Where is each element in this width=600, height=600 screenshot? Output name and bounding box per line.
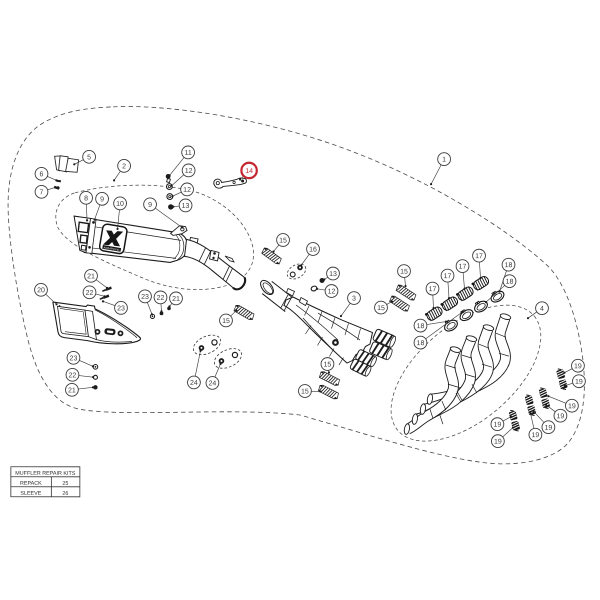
svg-text:22: 22 [86, 290, 94, 297]
svg-text:22: 22 [69, 372, 77, 379]
svg-text:23: 23 [70, 355, 78, 362]
svg-text:13: 13 [182, 203, 190, 210]
svg-text:16: 16 [309, 247, 317, 254]
svg-text:19: 19 [568, 403, 576, 410]
svg-text:8: 8 [84, 195, 88, 202]
svg-text:17: 17 [475, 253, 483, 260]
svg-text:25: 25 [62, 481, 68, 487]
svg-text:18: 18 [417, 340, 425, 347]
svg-text:18: 18 [506, 279, 514, 286]
svg-text:13: 13 [329, 271, 337, 278]
svg-text:6: 6 [40, 171, 44, 178]
svg-text:18: 18 [505, 262, 513, 269]
svg-text:SLEEVE: SLEEVE [20, 491, 41, 497]
svg-text:19: 19 [494, 422, 502, 429]
svg-text:10: 10 [116, 201, 124, 208]
svg-text:17: 17 [429, 286, 437, 293]
svg-text:21: 21 [172, 296, 180, 303]
svg-text:22: 22 [157, 295, 165, 302]
svg-text:19: 19 [531, 432, 539, 439]
svg-text:18: 18 [417, 323, 425, 330]
svg-text:7: 7 [40, 189, 44, 196]
svg-text:21: 21 [68, 387, 76, 394]
svg-text:17: 17 [444, 273, 452, 280]
svg-text:9: 9 [100, 196, 104, 203]
svg-text:15: 15 [279, 237, 287, 244]
svg-text:15: 15 [222, 318, 230, 325]
svg-text:3: 3 [352, 296, 356, 303]
svg-text:23: 23 [117, 305, 125, 312]
svg-text:17: 17 [459, 264, 467, 271]
svg-text:23: 23 [141, 294, 149, 301]
svg-text:21: 21 [87, 273, 95, 280]
svg-text:15: 15 [301, 389, 309, 396]
svg-text:4: 4 [540, 306, 544, 313]
svg-text:15: 15 [324, 362, 332, 369]
svg-text:19: 19 [575, 379, 583, 386]
svg-text:15: 15 [377, 305, 385, 312]
svg-text:12: 12 [185, 168, 193, 175]
svg-text:12: 12 [328, 289, 336, 296]
svg-text:26: 26 [62, 491, 68, 497]
svg-text:11: 11 [184, 150, 191, 157]
svg-text:20: 20 [37, 287, 45, 294]
svg-text:2: 2 [122, 163, 126, 170]
svg-text:15: 15 [400, 269, 408, 276]
svg-text:24: 24 [190, 380, 198, 387]
svg-text:14: 14 [245, 168, 253, 175]
svg-text:5: 5 [87, 154, 91, 161]
svg-text:24: 24 [209, 380, 217, 387]
svg-text:19: 19 [574, 363, 582, 370]
svg-text:12: 12 [183, 187, 191, 194]
svg-text:9: 9 [148, 202, 152, 209]
svg-text:1: 1 [442, 157, 446, 164]
svg-text:19: 19 [544, 425, 552, 432]
svg-text:19: 19 [494, 439, 502, 446]
svg-text:MUFFLER REPAIR KITS: MUFFLER REPAIR KITS [15, 471, 76, 477]
svg-text:19: 19 [557, 413, 565, 420]
svg-text:REPACK: REPACK [20, 481, 42, 487]
